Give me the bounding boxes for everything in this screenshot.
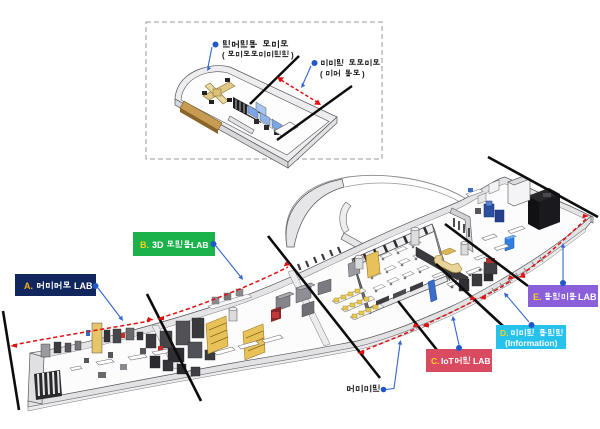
svg-text:LAB: LAB [578, 292, 597, 302]
svg-text:3D: 3D [152, 240, 164, 250]
svg-text:LAB: LAB [191, 240, 208, 250]
svg-text:LAB: LAB [473, 356, 490, 366]
svg-text:): ) [362, 70, 365, 79]
svg-text:A.: A. [24, 281, 33, 291]
svg-text:E.: E. [533, 292, 542, 302]
svg-text:C.: C. [431, 356, 440, 366]
svg-text:(: ( [222, 51, 225, 60]
svg-text:D.: D. [500, 328, 509, 338]
svg-text:IoT: IoT [441, 356, 455, 366]
svg-text:(: ( [320, 70, 323, 79]
svg-text:): ) [291, 51, 294, 60]
svg-text:(Information): (Information) [505, 338, 558, 348]
svg-text:B.: B. [140, 240, 149, 250]
svg-text:LAB: LAB [74, 281, 93, 291]
